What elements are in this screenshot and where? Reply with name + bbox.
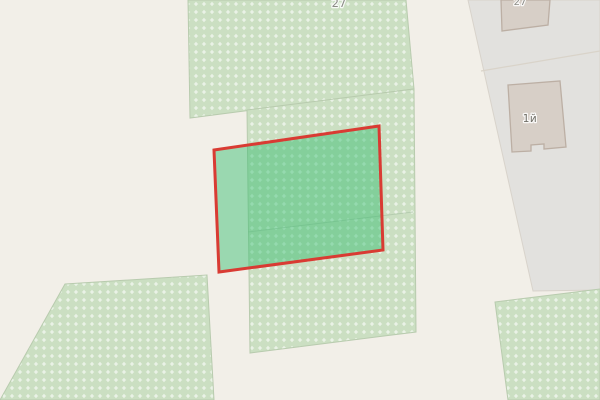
building-27-label: 27 <box>514 0 527 8</box>
map-viewport[interactable]: 27 27 1й <box>0 0 600 400</box>
building-1y-label: 1й <box>523 113 538 125</box>
map-canvas[interactable]: 27 27 1й <box>0 0 600 400</box>
vegetation-parcel-bottom-right[interactable] <box>495 289 600 400</box>
vegetation-parcel-label: 27 <box>332 0 347 10</box>
selected-parcel-polygon[interactable] <box>214 126 383 272</box>
